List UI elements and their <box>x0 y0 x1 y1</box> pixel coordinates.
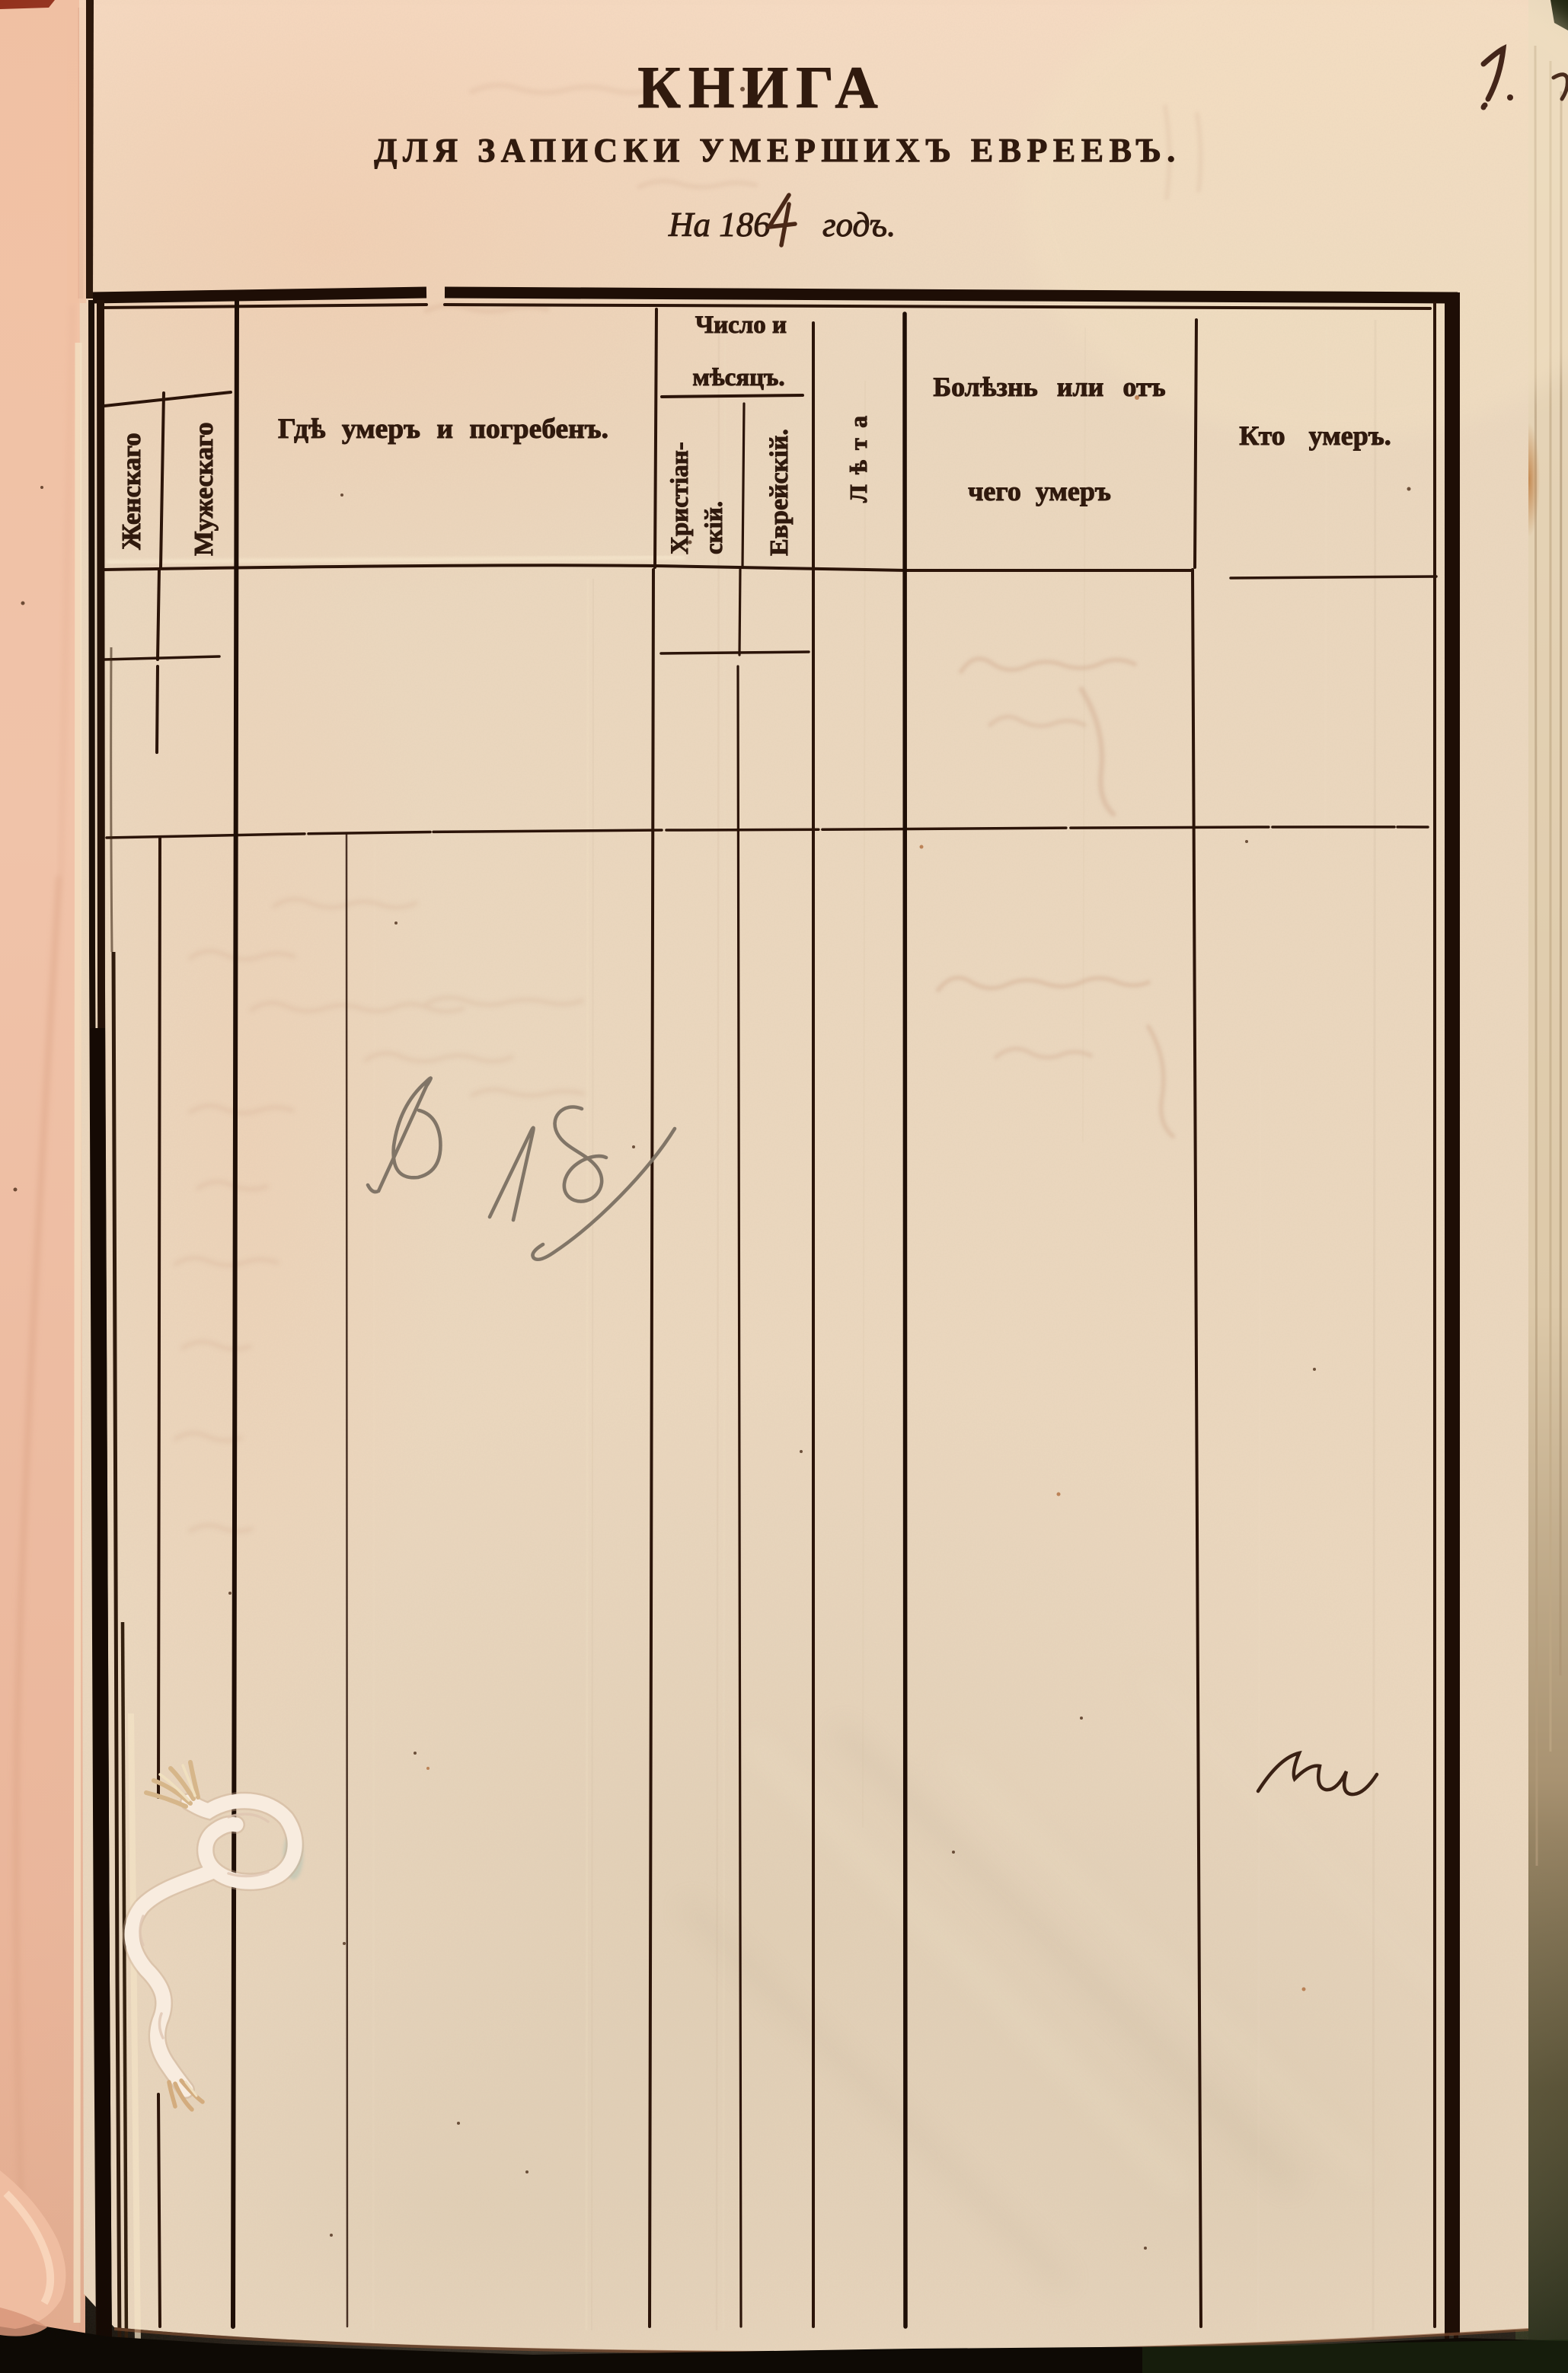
svg-text:ДЛЯ ЗАПИСКИ УМЕРШИХЪ ЕВРЕЕВЪ.: ДЛЯ ЗАПИСКИ УМЕРШИХЪ ЕВРЕЕВЪ. <box>374 132 1181 169</box>
svg-text:Болѣзнь или отъ: Болѣзнь или отъ <box>933 372 1165 402</box>
svg-text:КНИГА: КНИГА <box>637 54 885 120</box>
svg-text:На 186: На 186 <box>668 206 771 244</box>
svg-text:Число и: Число и <box>695 311 787 339</box>
svg-text:Кто умеръ.: Кто умеръ. <box>1239 420 1391 451</box>
svg-text:годъ.: годъ. <box>822 206 896 244</box>
svg-text:Мужескаго: Мужескаго <box>189 422 219 556</box>
svg-text:Еврейскій.: Еврейскій. <box>765 429 794 556</box>
svg-text:чего умеръ: чего умеръ <box>968 476 1111 506</box>
svg-text:скій.: скій. <box>701 501 728 554</box>
svg-text:Женскаго: Женскаго <box>117 433 146 550</box>
svg-text:Лѣта: Лѣта <box>845 406 872 503</box>
svg-text:Христіан-: Христіан- <box>666 442 694 554</box>
svg-text:мѣсяцъ.: мѣсяцъ. <box>692 364 784 391</box>
svg-text:Гдѣ умеръ и погребенъ.: Гдѣ умеръ и погребенъ. <box>278 414 608 445</box>
